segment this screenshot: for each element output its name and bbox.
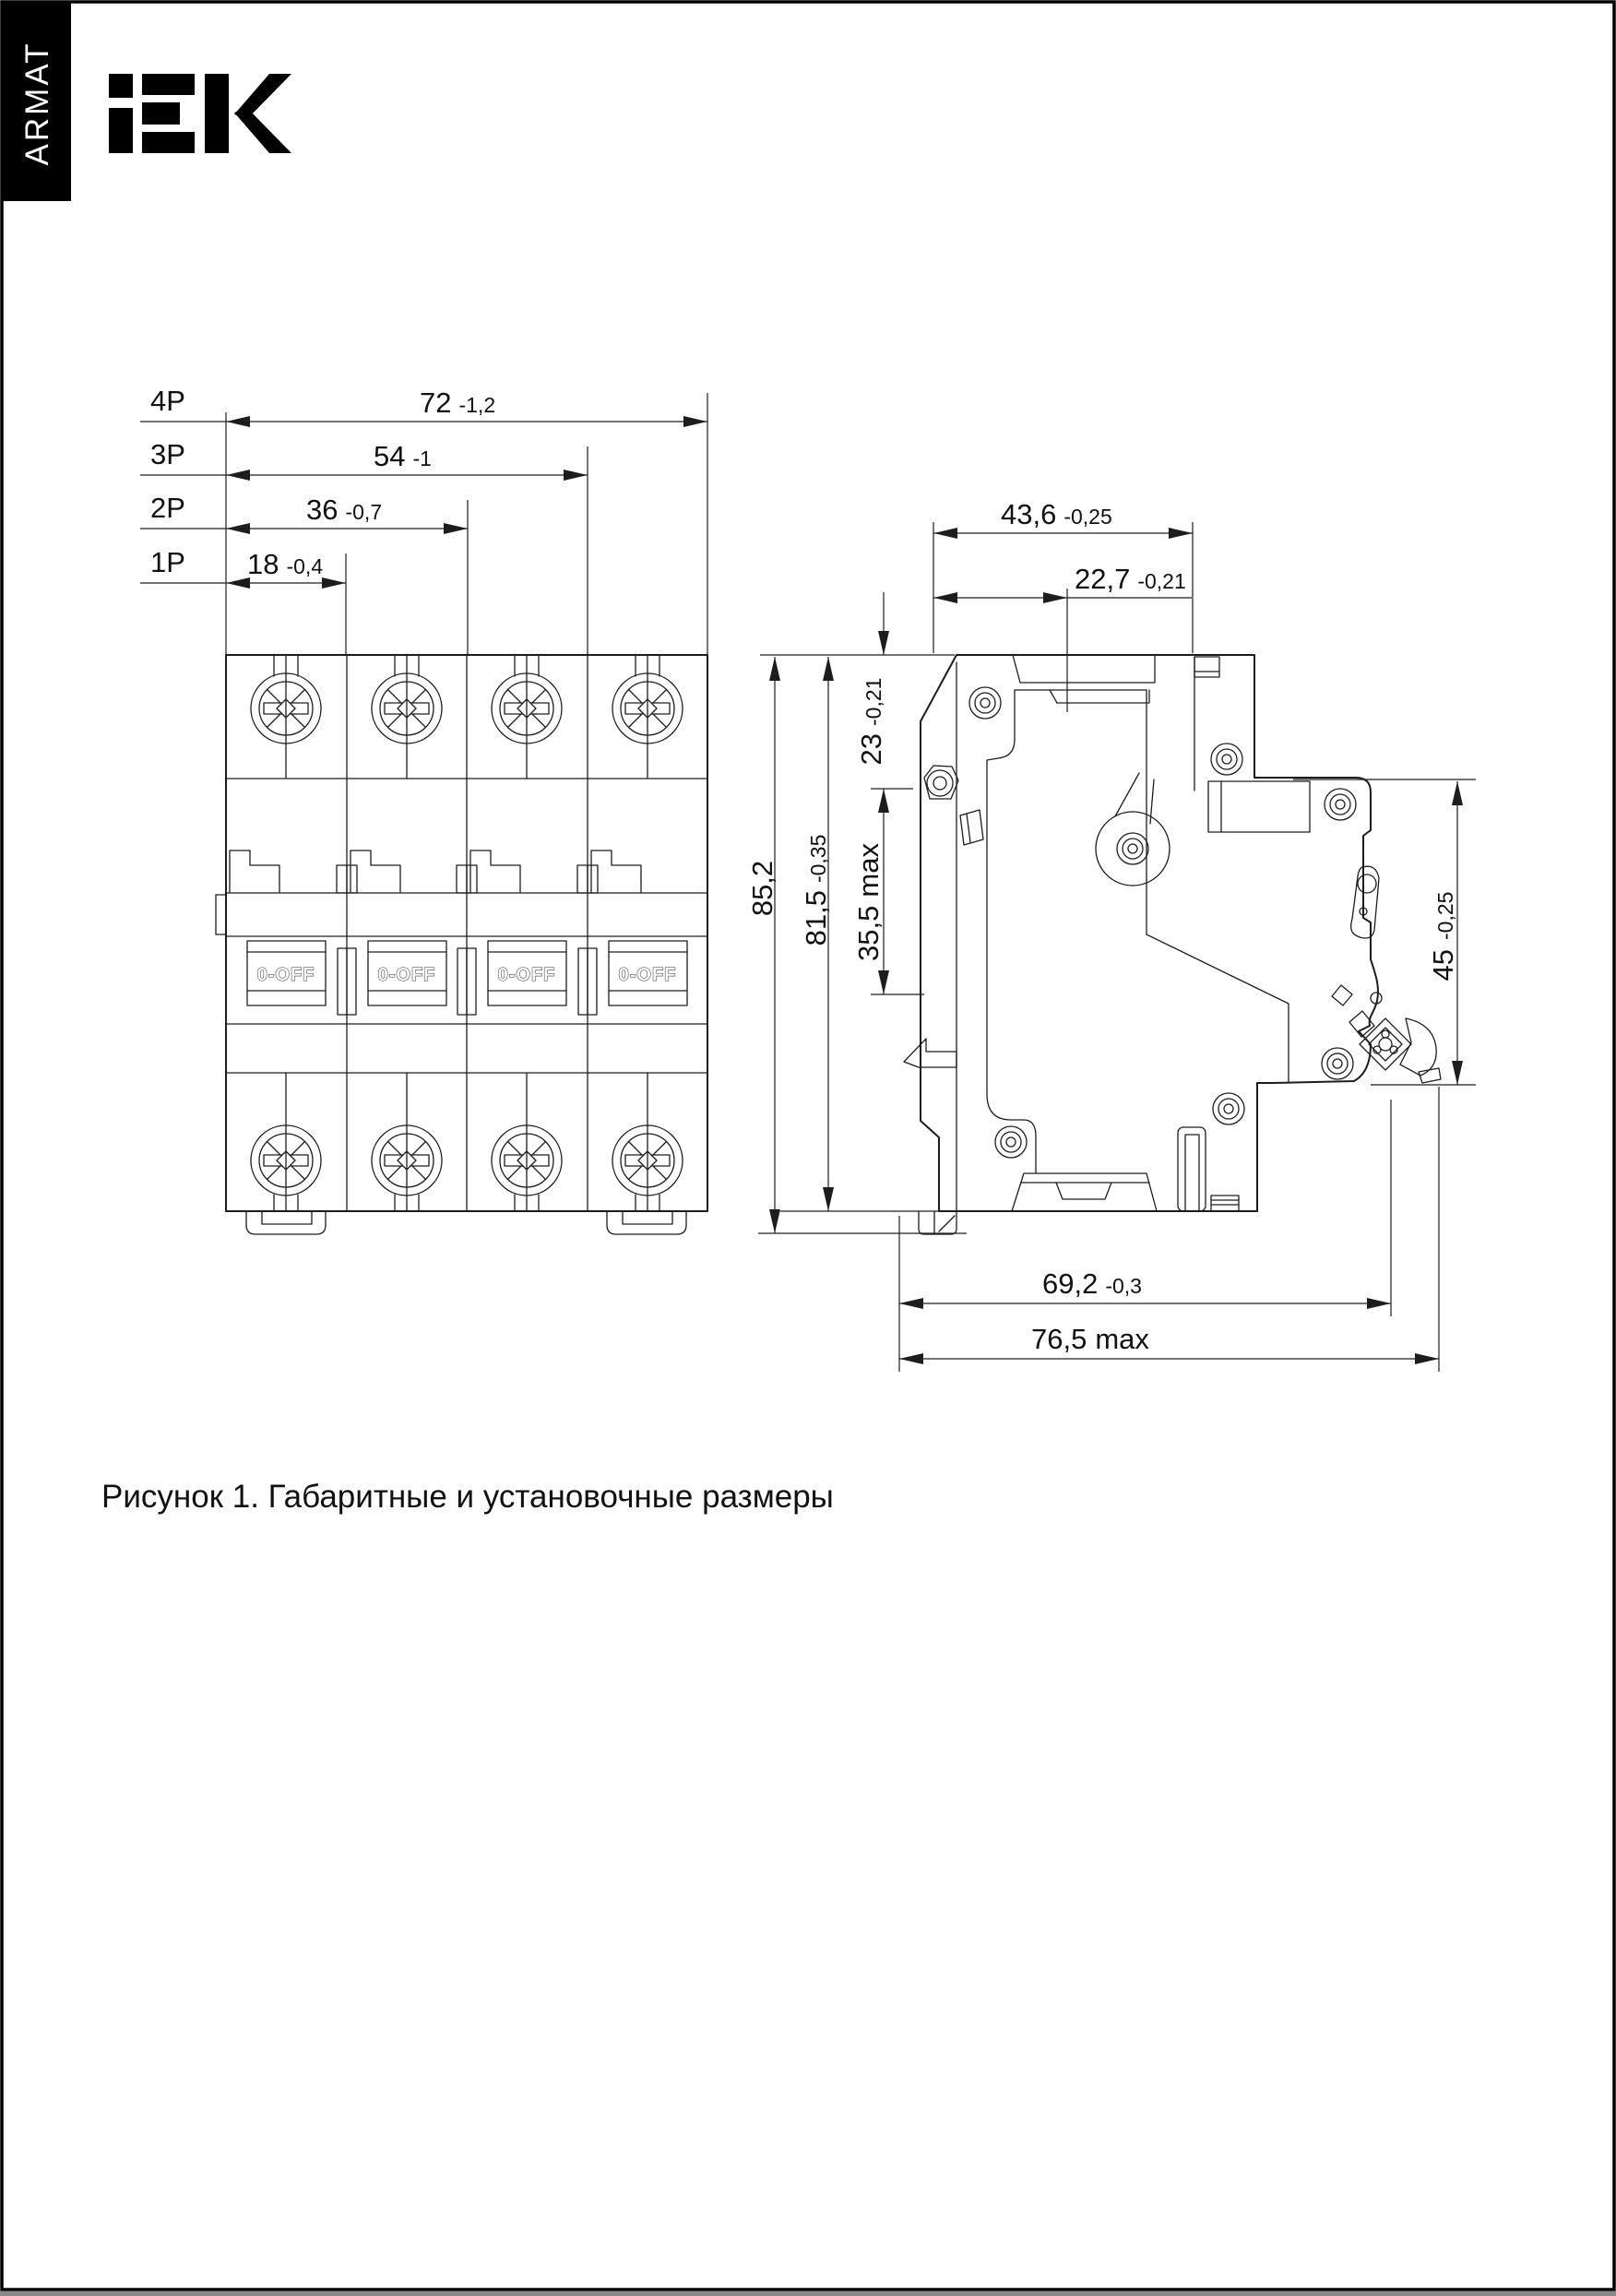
logo-e-bar-mid bbox=[142, 102, 180, 125]
handle-label: 0-OFF bbox=[257, 965, 315, 985]
datasheet-page: ARMAT bbox=[0, 0, 1616, 2291]
page-background bbox=[0, 0, 1616, 2291]
handle-label: 0-OFF bbox=[619, 965, 677, 985]
handle-label: 0-OFF bbox=[378, 965, 436, 985]
logo-i-dot bbox=[109, 74, 133, 98]
logo-i-stem bbox=[109, 108, 133, 153]
drawing-canvas: ARMAT bbox=[0, 0, 1616, 2291]
pole-label: 1P bbox=[150, 546, 185, 578]
handle-label: 0-OFF bbox=[498, 965, 556, 985]
logo-e-bar-bottom bbox=[142, 132, 195, 153]
pole-label: 3P bbox=[150, 438, 185, 470]
brand-side-tab: ARMAT bbox=[2, 2, 71, 201]
logo-k-stem bbox=[205, 74, 229, 153]
figure-caption: Рисунок 1. Габаритные и установочные раз… bbox=[101, 1479, 834, 1515]
dim-value: 85,2 bbox=[746, 861, 778, 916]
brand-tab-label: ARMAT bbox=[19, 42, 55, 166]
logo-e-bar-top bbox=[142, 74, 195, 95]
pole-label: 4P bbox=[150, 385, 185, 417]
pole-label: 2P bbox=[150, 492, 185, 524]
